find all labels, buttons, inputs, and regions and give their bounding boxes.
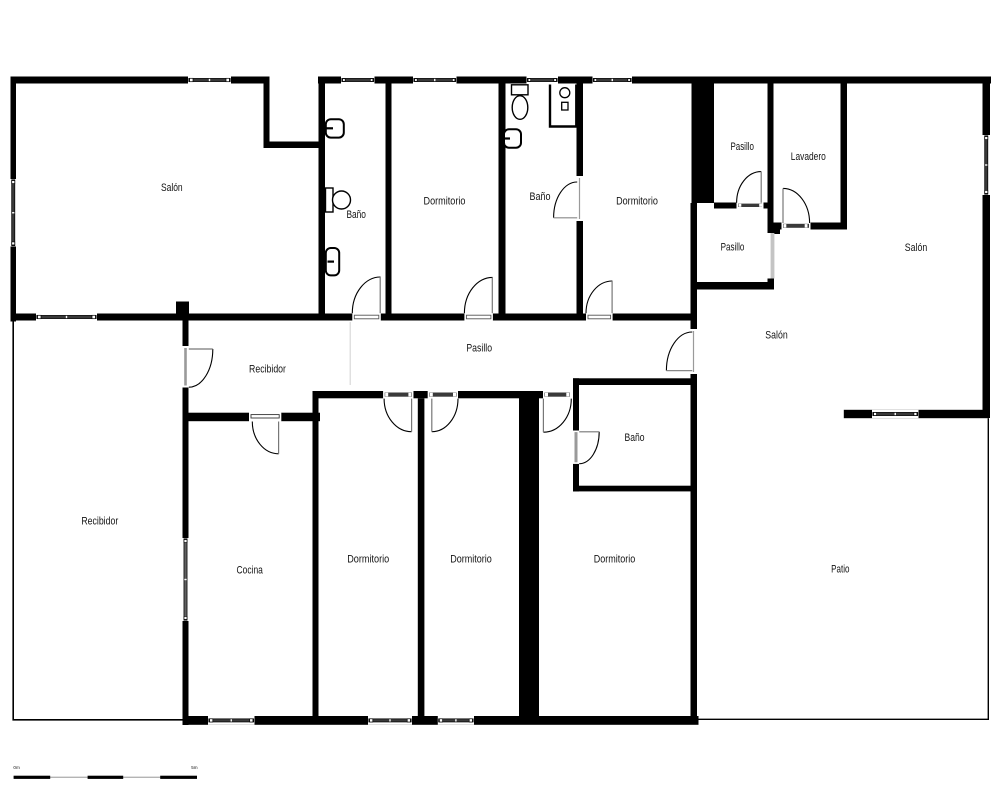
svg-text:Dormitorio: Dormitorio xyxy=(424,196,466,208)
svg-text:Salón: Salón xyxy=(905,242,927,254)
svg-text:Recibidor: Recibidor xyxy=(81,515,118,527)
svg-text:5m: 5m xyxy=(191,765,198,770)
svg-text:Dormitorio: Dormitorio xyxy=(594,554,636,566)
svg-text:Baño: Baño xyxy=(346,209,366,221)
svg-text:Baño: Baño xyxy=(530,191,551,203)
svg-text:Salón: Salón xyxy=(765,330,787,342)
svg-text:Pasillo: Pasillo xyxy=(721,241,745,253)
svg-text:Baño: Baño xyxy=(625,432,645,444)
svg-text:Lavadero: Lavadero xyxy=(791,151,826,163)
svg-text:Dormitorio: Dormitorio xyxy=(450,554,492,566)
svg-text:Patio: Patio xyxy=(831,564,849,576)
svg-text:Pasillo: Pasillo xyxy=(466,342,492,354)
svg-text:0m: 0m xyxy=(13,765,20,770)
svg-text:Pasillo: Pasillo xyxy=(730,141,754,153)
svg-text:Dormitorio: Dormitorio xyxy=(616,196,658,208)
svg-text:Dormitorio: Dormitorio xyxy=(347,554,389,566)
svg-text:Cocina: Cocina xyxy=(237,564,264,576)
svg-text:Salón: Salón xyxy=(161,182,183,194)
svg-text:Recibidor: Recibidor xyxy=(249,363,286,375)
